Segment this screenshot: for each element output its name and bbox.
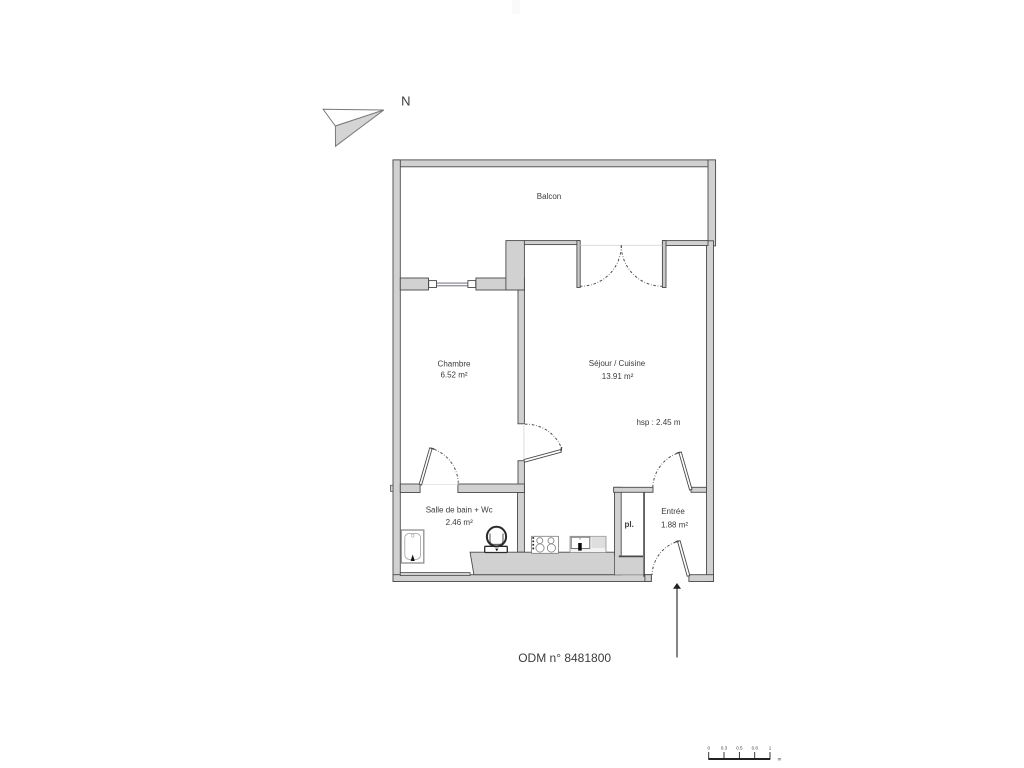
- svg-text:m: m: [778, 757, 782, 762]
- svg-text:6.52 m²: 6.52 m²: [440, 370, 467, 379]
- svg-text:1.88 m²: 1.88 m²: [661, 521, 688, 530]
- svg-text:2.46 m²: 2.46 m²: [446, 518, 473, 527]
- svg-text:0: 0: [707, 745, 710, 750]
- svg-text:Balcon: Balcon: [537, 192, 561, 201]
- svg-text:Chambre: Chambre: [438, 359, 471, 368]
- svg-text:1: 1: [769, 745, 772, 750]
- svg-text:Séjour / Cuisine: Séjour / Cuisine: [589, 359, 646, 368]
- svg-text:0.8: 0.8: [752, 745, 759, 750]
- svg-text:Salle de bain + Wc: Salle de bain + Wc: [426, 506, 493, 515]
- svg-text:0.3: 0.3: [721, 745, 728, 750]
- svg-text:13.91 m²: 13.91 m²: [602, 372, 634, 381]
- svg-text:pl.: pl.: [625, 520, 634, 529]
- svg-text:N: N: [401, 94, 410, 109]
- svg-text:hsp : 2.45 m: hsp : 2.45 m: [636, 418, 680, 427]
- svg-text:ODM n° 8481800: ODM n° 8481800: [518, 651, 611, 665]
- svg-text:0.5: 0.5: [736, 745, 743, 750]
- svg-text:Entrée: Entrée: [661, 507, 685, 516]
